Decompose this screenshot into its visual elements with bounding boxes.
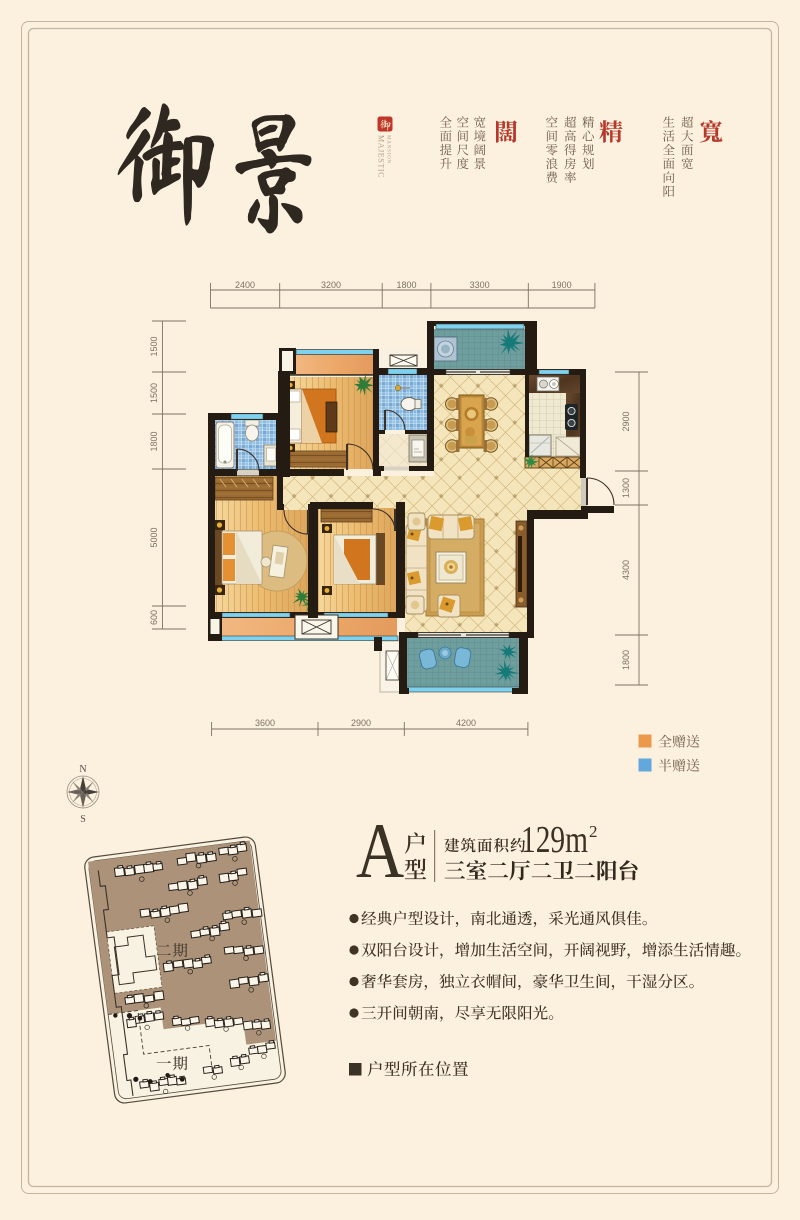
svg-text:MAJESTIC: MAJESTIC [377,135,386,178]
svg-text:A: A [356,807,404,894]
svg-text:1900: 1900 [552,280,572,290]
svg-text:1800: 1800 [621,650,631,670]
svg-text:4300: 4300 [621,560,631,580]
svg-text:3300: 3300 [470,280,490,290]
svg-text:1500: 1500 [149,336,159,356]
svg-text:N: N [79,764,86,775]
svg-text:4200: 4200 [456,718,476,728]
svg-text:600: 600 [149,610,159,625]
svg-text:S: S [80,814,86,825]
svg-text:1800: 1800 [149,431,159,451]
svg-text:1300: 1300 [621,478,631,498]
svg-text:2900: 2900 [621,411,631,431]
svg-text:5000: 5000 [149,527,159,547]
svg-text:1800: 1800 [396,280,416,290]
svg-text:3200: 3200 [321,280,341,290]
svg-text:1500: 1500 [149,383,159,403]
svg-text:2400: 2400 [235,280,255,290]
svg-text:129m: 129m [521,819,588,861]
svg-text:2900: 2900 [351,718,371,728]
svg-text:3600: 3600 [255,718,275,728]
svg-text:2: 2 [589,822,598,841]
